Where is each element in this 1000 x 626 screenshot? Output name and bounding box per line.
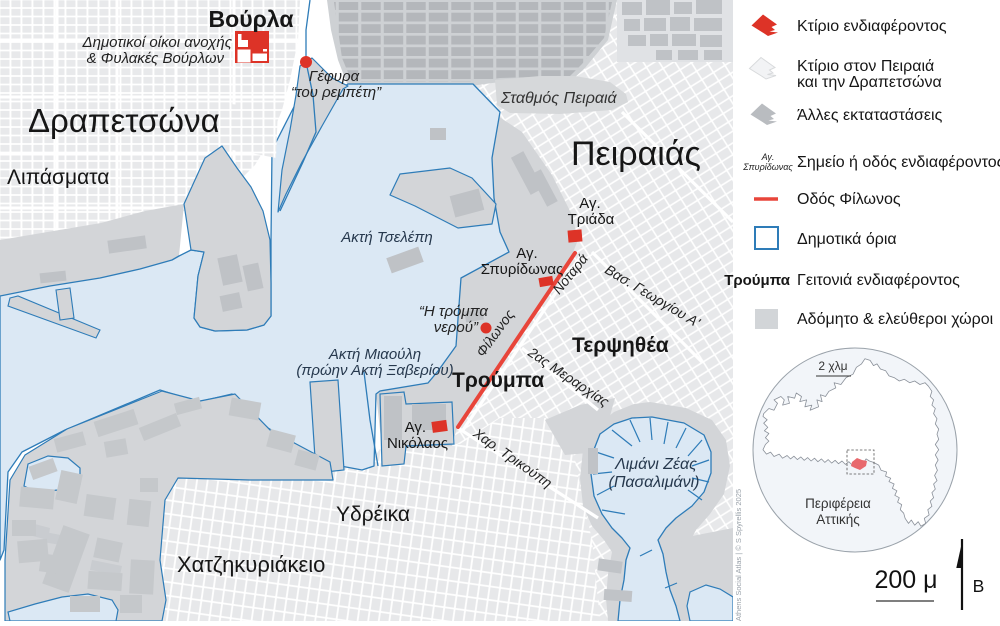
svg-text:Σταθμός Πειραιά: Σταθμός Πειραιά <box>500 90 618 107</box>
svg-text:200 μ: 200 μ <box>874 566 937 594</box>
svg-text:Αττικής: Αττικής <box>816 512 860 527</box>
svg-text:νερού”: νερού” <box>434 319 479 336</box>
svg-text:Αδόμητο & ελεύθεροι χώροι: Αδόμητο & ελεύθεροι χώροι <box>797 311 994 328</box>
svg-text:Γέφυρα: Γέφυρα <box>309 68 360 85</box>
svg-text:Τρούμπα: Τρούμπα <box>452 369 544 392</box>
svg-text:Υδρέικα: Υδρέικα <box>336 503 410 526</box>
svg-text:Τρούμπα: Τρούμπα <box>724 272 791 289</box>
svg-text:και την Δραπετσώνα: και την Δραπετσώνα <box>797 74 942 91</box>
svg-text:Περιφέρεια: Περιφέρεια <box>805 496 871 511</box>
svg-text:2 χλμ: 2 χλμ <box>818 359 847 373</box>
svg-text:Χατζηκυριάκειο: Χατζηκυριάκειο <box>177 552 325 577</box>
svg-text:Αγ.: Αγ. <box>579 195 600 212</box>
svg-text:Δραπετσώνα: Δραπετσώνα <box>28 102 220 139</box>
svg-text:(Πασαλιμάνι): (Πασαλιμάνι) <box>608 474 699 491</box>
svg-text:Αγ.: Αγ. <box>761 152 775 162</box>
svg-text:Λιπάσματα: Λιπάσματα <box>7 166 109 189</box>
svg-text:& Φυλακές Βούρλων: & Φυλακές Βούρλων <box>87 50 225 67</box>
svg-text:Ακτή Μιαούλη: Ακτή Μιαούλη <box>328 346 421 363</box>
svg-text:“του ρεμπέτη”: “του ρεμπέτη” <box>291 84 382 101</box>
svg-text:“Η τρόμπα: “Η τρόμπα <box>419 303 489 320</box>
svg-text:Λιμάνι Ζέας: Λιμάνι Ζέας <box>614 456 697 473</box>
svg-text:B: B <box>973 576 985 596</box>
svg-text:Τερψηθέα: Τερψηθέα <box>572 334 669 357</box>
svg-text:(πρώην Ακτή Ξαβερίου): (πρώην Ακτή Ξαβερίου) <box>296 362 453 379</box>
svg-text:Σημείο ή οδός ενδιαφέροντος: Σημείο ή οδός ενδιαφέροντος <box>797 154 1000 171</box>
svg-text:Πειραιάς: Πειραιάς <box>571 135 701 173</box>
svg-text:Σπυρίδωνας: Σπυρίδωνας <box>481 261 563 278</box>
svg-text:Δημοτικοί οίκοι ανοχής: Δημοτικοί οίκοι ανοχής <box>82 34 233 51</box>
svg-text:Ακτή Τσελέπη: Ακτή Τσελέπη <box>340 229 432 246</box>
svg-text:Αγ.: Αγ. <box>516 245 537 262</box>
svg-text:Τριάδα: Τριάδα <box>568 211 615 228</box>
svg-text:Βούρλα: Βούρλα <box>209 6 294 32</box>
svg-text:Αγ.: Αγ. <box>405 419 426 436</box>
svg-text:Athens Social Atlas | © S Spyr: Athens Social Atlas | © S Spyrellis 2025 <box>734 489 743 621</box>
svg-text:Κτίριο στον Πειραιά: Κτίριο στον Πειραιά <box>797 58 934 75</box>
svg-text:Κτίριο ενδιαφέροντος: Κτίριο ενδιαφέροντος <box>797 18 947 35</box>
svg-text:Νικόλαος: Νικόλαος <box>387 435 448 452</box>
svg-text:Δημοτικά όρια: Δημοτικά όρια <box>797 231 897 248</box>
svg-text:Άλλες εκταταστάσεις: Άλλες εκταταστάσεις <box>797 107 943 124</box>
svg-text:Οδός Φίλωνος: Οδός Φίλωνος <box>797 191 901 208</box>
svg-text:Γειτονιά ενδιαφέροντος: Γειτονιά ενδιαφέροντος <box>797 272 960 289</box>
svg-text:Σπυρίδωνας: Σπυρίδωνας <box>742 162 793 172</box>
